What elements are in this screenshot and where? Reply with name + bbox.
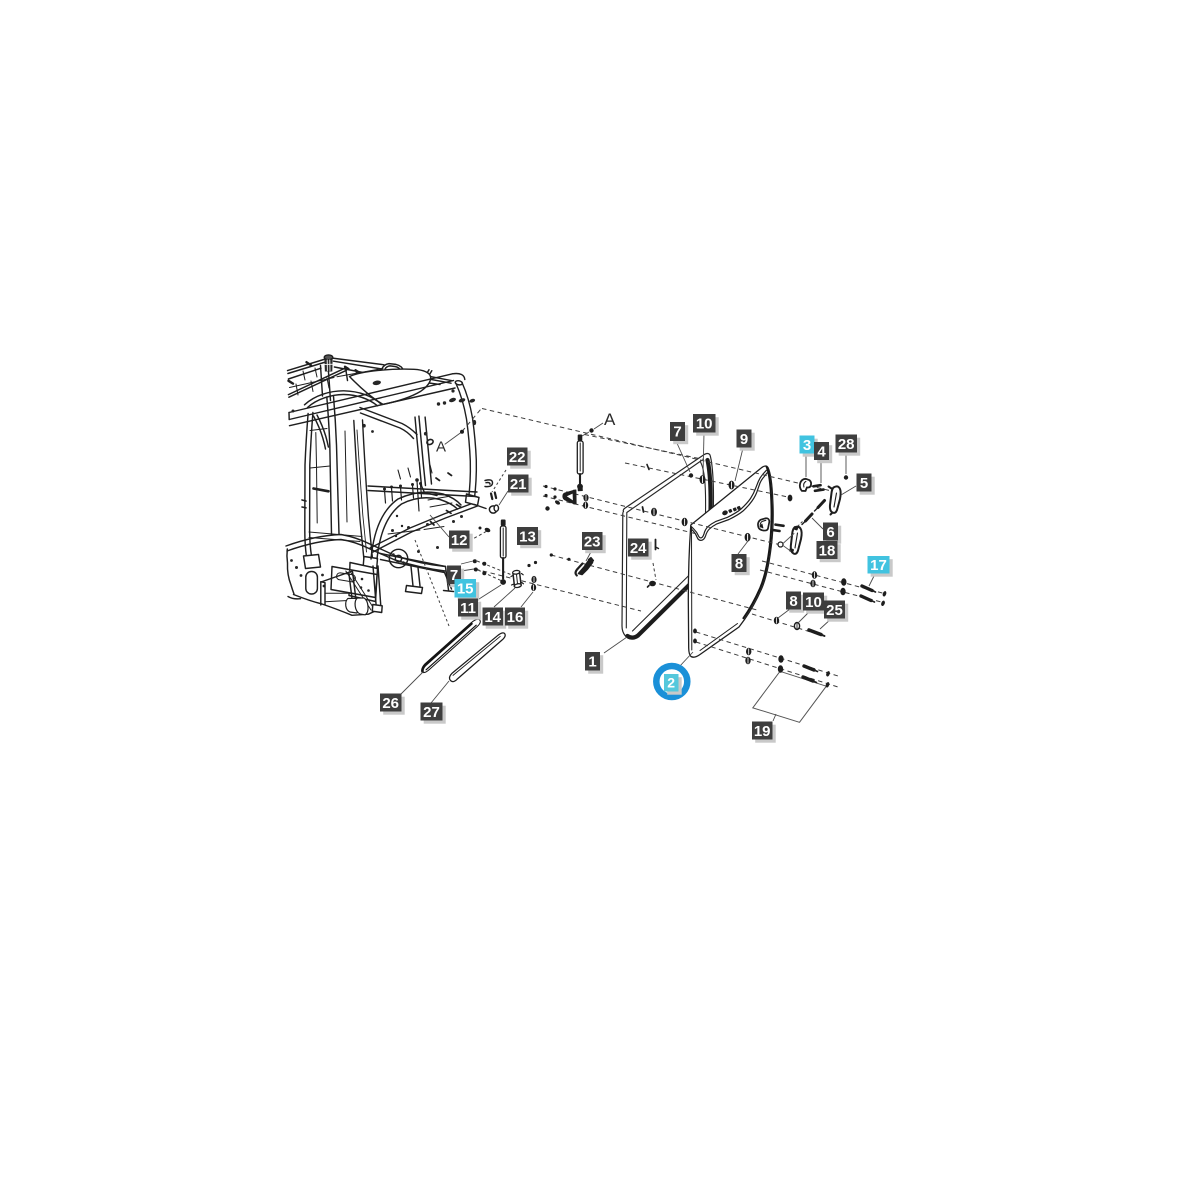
svg-text:26: 26 (382, 695, 399, 712)
svg-text:22: 22 (509, 449, 526, 466)
svg-text:25: 25 (826, 602, 843, 619)
svg-text:A: A (436, 439, 446, 456)
svg-text:13: 13 (519, 528, 536, 545)
svg-text:3: 3 (803, 437, 811, 454)
svg-text:10: 10 (805, 594, 822, 611)
svg-text:7: 7 (673, 424, 681, 441)
svg-text:2: 2 (667, 675, 675, 691)
svg-text:23: 23 (584, 533, 601, 550)
svg-text:17: 17 (870, 557, 887, 574)
svg-text:4: 4 (817, 443, 826, 460)
svg-text:A: A (604, 410, 616, 429)
svg-text:10: 10 (696, 415, 713, 432)
svg-text:12: 12 (451, 532, 468, 549)
svg-text:16: 16 (507, 609, 524, 626)
svg-text:8: 8 (789, 593, 797, 610)
svg-text:28: 28 (838, 436, 855, 453)
svg-text:8: 8 (735, 555, 743, 572)
svg-text:14: 14 (484, 609, 501, 626)
svg-text:11: 11 (460, 600, 476, 617)
svg-text:18: 18 (819, 542, 836, 559)
svg-text:21: 21 (510, 476, 527, 493)
svg-text:24: 24 (630, 540, 647, 557)
svg-text:6: 6 (826, 524, 834, 541)
svg-text:15: 15 (457, 581, 474, 598)
svg-text:5: 5 (860, 475, 868, 492)
svg-text:1: 1 (588, 653, 596, 670)
svg-text:27: 27 (423, 704, 440, 721)
svg-text:9: 9 (740, 431, 748, 448)
svg-text:19: 19 (754, 723, 771, 740)
